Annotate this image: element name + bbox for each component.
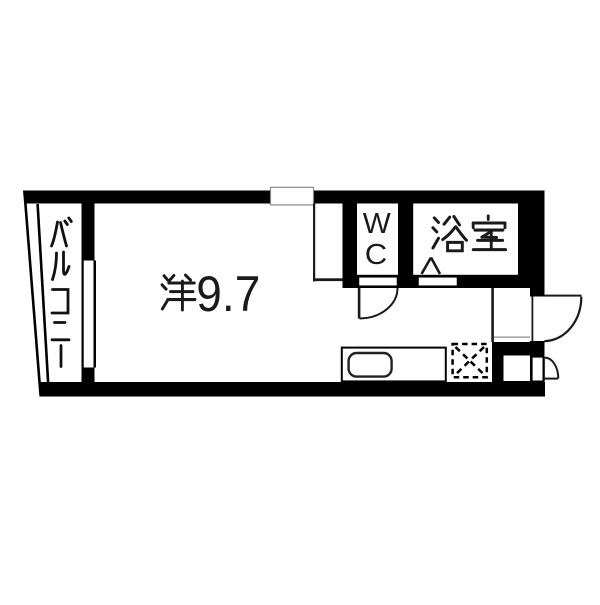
svg-text:9.7: 9.7 xyxy=(196,266,260,322)
svg-text:C: C xyxy=(365,239,388,271)
svg-text:W: W xyxy=(363,208,392,240)
